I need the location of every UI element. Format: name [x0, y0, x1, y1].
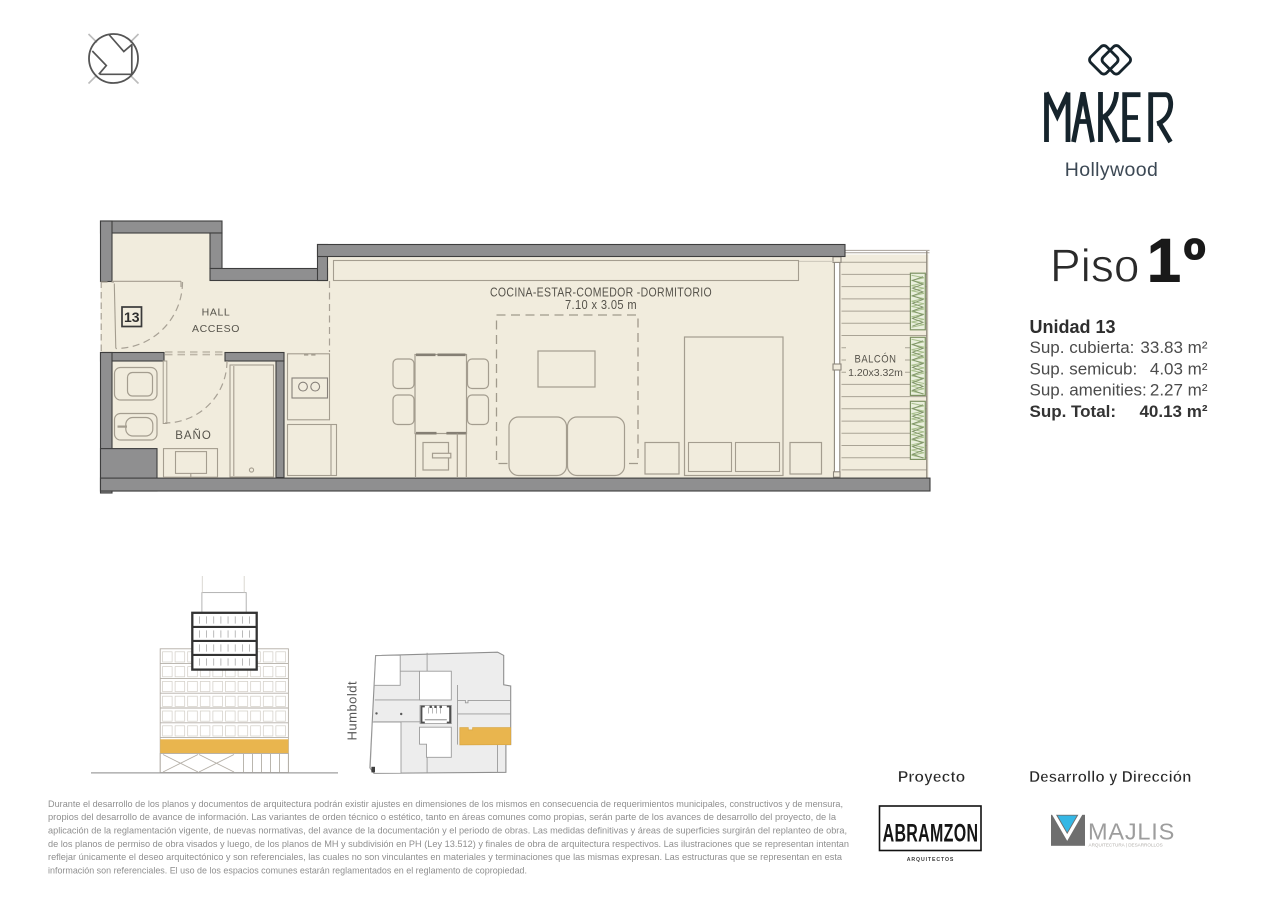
svg-text:ARQUITECTOS: ARQUITECTOS	[907, 857, 955, 863]
svg-text:ACCESO: ACCESO	[192, 323, 240, 335]
svg-text:4.03 m²: 4.03 m²	[1150, 359, 1208, 378]
svg-text:Sup. Total:: Sup. Total:	[1030, 402, 1117, 421]
svg-text:BAÑO: BAÑO	[175, 429, 212, 442]
svg-text:HALL: HALL	[202, 307, 231, 319]
svg-text:Proyecto: Proyecto	[898, 769, 966, 786]
svg-text:Piso: Piso	[1050, 240, 1139, 292]
svg-text:Humboldt: Humboldt	[345, 681, 360, 741]
svg-text:13: 13	[124, 309, 140, 325]
svg-text:Sup. semicub:: Sup. semicub:	[1030, 359, 1138, 378]
svg-text:33.83 m²: 33.83 m²	[1140, 338, 1207, 357]
svg-text:Desarrollo y Dirección: Desarrollo y Dirección	[1029, 769, 1191, 786]
svg-text:MAJLIS: MAJLIS	[1088, 819, 1175, 845]
svg-text:información son referenciales.: información son referenciales. El uso de…	[48, 866, 527, 877]
svg-text:Unidad 13: Unidad 13	[1030, 317, 1116, 337]
svg-text:reflejar únicamente el deseo a: reflejar únicamente el deseo arquitectón…	[48, 852, 843, 863]
svg-text:Sup. amenities:: Sup. amenities:	[1030, 381, 1147, 400]
svg-text:ABRAMZON: ABRAMZON	[883, 820, 979, 847]
svg-text:Sup. cubierta:: Sup. cubierta:	[1030, 338, 1135, 357]
svg-text:Durante el desarrollo de los p: Durante el desarrollo de los planos y do…	[48, 799, 843, 810]
svg-text:7.10 x 3.05 m: 7.10 x 3.05 m	[565, 298, 637, 312]
svg-text:BALCÓN: BALCÓN	[855, 353, 897, 366]
svg-text:40.13 m²: 40.13 m²	[1139, 402, 1207, 421]
svg-text:ARQUITECTURA | DESARROLLOS: ARQUITECTURA | DESARROLLOS	[1089, 842, 1163, 847]
svg-text:de los planos de permiso de ob: de los planos de permiso de obra visados…	[48, 839, 849, 850]
svg-text:Hollywood: Hollywood	[1065, 159, 1159, 181]
svg-text:1.20x3.32m: 1.20x3.32m	[848, 367, 903, 379]
svg-text:propios del desarrollo de avan: propios del desarrollo de avance de info…	[48, 812, 837, 823]
svg-text:2.27 m²: 2.27 m²	[1150, 381, 1208, 400]
svg-text:aplicación de la reglamentació: aplicación de la reglamentación vigente,…	[48, 826, 847, 837]
svg-text:1º: 1º	[1147, 227, 1208, 295]
